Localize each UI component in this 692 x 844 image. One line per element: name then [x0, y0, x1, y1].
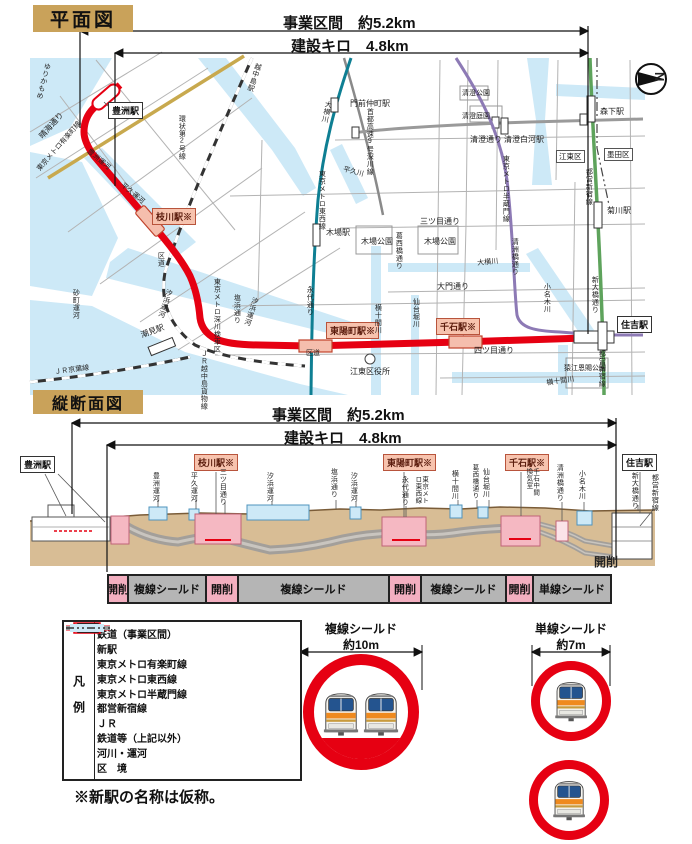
ward-label-sumida: 墨田区 [604, 148, 633, 161]
station-label-kiba: 木場駅 [326, 229, 350, 237]
bar-segment: 開削 [207, 576, 239, 602]
station-label-kiyosumi-shirakawa: 清澄白河駅 [504, 136, 544, 144]
label-koto-ward-office: 江東区役所 [350, 368, 390, 376]
legend-item-hanzomon: 東京メトロ半蔵門線 [97, 687, 298, 699]
station-label-edagawa: 枝川駅※ [152, 208, 196, 225]
label-kanjo-2: 環状第2号線 [178, 115, 185, 160]
label-sunamachi-canal: 砂町運河 [72, 289, 79, 319]
profile-label-tozai-line: 東京メトロ東西線 [413, 476, 427, 506]
label-mitsume-dori: 三ツ目通り [420, 218, 460, 226]
profile-station-edagawa: 枝川駅※ [194, 454, 238, 471]
profile-label-shiohama-canal: 汐浜運河 [266, 472, 273, 502]
station-label-sumiyoshi: 住吉駅 [617, 316, 652, 333]
label-kasaibashi-dori: 葛西橋通り [395, 232, 402, 270]
label-kiyosumi-dori: 清澄通り [470, 136, 502, 144]
station-label-toyocho: 東陽町駅※ [326, 322, 379, 339]
profile-label-yokojikken-river: 横十間川 [451, 470, 458, 500]
legend-item-new-station: 新駅 [97, 642, 298, 654]
label-etchujima-freight: ＪＲ越中島貨物線 [200, 350, 207, 410]
compass-label: N [652, 72, 666, 81]
plan-title: 平面図 [33, 5, 133, 32]
legend-item-shinjuku: 都営新宿線 [97, 702, 298, 714]
profile-label-heikyu-canal: 平久運河 [190, 472, 197, 502]
profile-label-sendaibori-river: 仙台堀川 [482, 468, 489, 498]
label-kiyosubashi-dori: 清洲橋通り [511, 238, 518, 276]
double-shield-section [300, 645, 422, 765]
label-kiba-park-2: 木場公園 [424, 238, 456, 246]
label-yokojikken-river: 横十間川 [374, 304, 381, 334]
profile-title: 縦断面図 [33, 390, 143, 414]
bar-segment: 複線シールド [129, 576, 207, 602]
plan-dim-construction: 建設キロ 4.8km [291, 35, 409, 56]
single-shield-title: 単線シールド [510, 620, 632, 637]
construction-method-bar: 開削 複線シールド 開削 複線シールド 開削 複線シールド 開削 単線シールド [107, 574, 612, 604]
label-kudo: 区道 [157, 252, 164, 267]
profile-dim-construction: 建設キロ 4.8km [284, 427, 402, 448]
ward-label-koto: 江東区 [556, 150, 585, 163]
label-kudo-2: 区道 [306, 350, 320, 357]
page: 平面図 事業区間 約5.2km 建設キロ 4.8km N 豊洲駅 枝川駅※ 東陽… [0, 0, 692, 844]
station-label-morishita: 森下駅 [600, 108, 624, 116]
label-yotsume-dori: 四ツ目通り [474, 347, 514, 355]
note-new-station: ※新駅の名称は仮称。 [74, 786, 224, 807]
profile-label-shiohama-dori: 塩浜通り [330, 468, 337, 498]
profile-station-toyocho: 東陽町駅※ [383, 454, 436, 471]
plan-dim-business: 事業区間 約5.2km [283, 12, 416, 33]
legend-item-project-rail: 鉄道（事業区間） [97, 627, 298, 639]
legend-item-jr: ＪＲ [97, 717, 298, 729]
double-shield-size: 約10m [300, 636, 422, 653]
profile-label-kaisaku: 開削 [594, 556, 618, 569]
profile-label-shin-ohashi-dori: 新大橋通り [631, 472, 638, 510]
station-label-kikukawa: 菊川駅 [607, 207, 631, 215]
bar-segment: 開削 [390, 576, 422, 602]
profile-label-kiyosubashi-dori: 清洲橋通り [556, 464, 563, 502]
legend-item-boundary: 区 境 [97, 761, 298, 773]
bar-segment: 開削 [109, 576, 129, 602]
label-kiba-park: 木場公園 [361, 238, 393, 246]
profile-label-toyosu-canal: 豊洲運河 [152, 472, 159, 502]
profile-dim-business: 事業区間 約5.2km [272, 404, 405, 425]
label-hanzomon-line: 東京メトロ半蔵門線 [502, 155, 509, 223]
label-shin-ohashi-dori: 新大橋通り [591, 276, 598, 314]
profile-label-sengoku-vent: 千石中間換気室 [524, 468, 538, 498]
label-shinjuku-line: 都営新宿線 [585, 168, 592, 206]
bar-segment: 単線シールド [534, 576, 610, 602]
label-shuto-expressway: 首都高速9号深川線 [366, 108, 373, 176]
ward-office-symbol [365, 354, 375, 364]
double-shield-title: 複線シールド [300, 620, 422, 637]
profile-label-eitai-dori: 永代通り [401, 476, 408, 506]
single-shield-size: 約7m [510, 636, 632, 653]
bar-segment: 複線シールド [239, 576, 390, 602]
label-eitai-dori: 永代通り [306, 286, 313, 316]
profile-toyosu-structure [32, 505, 110, 541]
boundary-symbol [64, 622, 112, 634]
legend-item-yurakucho: 東京メトロ有楽町線 [97, 657, 298, 669]
station-label-sengoku: 千石駅※ [436, 318, 480, 335]
label-daimon-dori: 大門通り [437, 283, 469, 291]
label-sendaibori-river: 仙台堀川 [412, 298, 419, 328]
profile-station-sumiyoshi: 住吉駅 [622, 454, 657, 471]
profile-label-mitsume-dori: 三ツ目通り [219, 468, 226, 506]
sumiyoshi-station-marker [574, 331, 614, 343]
single-shield-section [532, 645, 610, 836]
ward-boundary-line [597, 58, 609, 205]
profile-label-kasaibashi-dori: 葛西橋通り [470, 464, 477, 499]
bar-segment: 開削 [507, 576, 534, 602]
label-tozai-line: 東京メトロ東西線 [318, 170, 325, 230]
legend-rows: 鉄道（事業区間） 新駅 東京メトロ有楽町線 東京メトロ東西線 東京メトロ半蔵門線… [95, 622, 300, 779]
profile-station-toyosu: 豊洲駅 [20, 456, 55, 473]
profile-label-shiohama-canal-2: 汐浜運河 [350, 472, 357, 502]
label-kiyosumi-garden: 清澄庭園 [462, 113, 490, 120]
legend-item-tozai: 東京メトロ東西線 [97, 672, 298, 684]
label-shiohama-dori: 塩浜通り [233, 294, 240, 324]
legend-item-water: 河川・運河 [97, 747, 298, 759]
bar-segment: 複線シールド [422, 576, 507, 602]
profile-label-onagi-river: 小名木川 [578, 470, 585, 500]
label-fukagawa-depot: 東京メトロ深川検車区 [213, 278, 220, 353]
legend-box: 凡例 鉄道（事業区間） 新駅 東京メトロ有楽町線 東京メトロ東西線 東京メトロ半… [62, 620, 302, 781]
profile-label-shinjuku-line: 都営新宿線 [651, 474, 658, 512]
label-kiyosumi-park: 清澄公園 [462, 90, 490, 97]
label-onagi-river: 小名木川 [543, 283, 550, 313]
legend-item-other-rail: 鉄道等（上記以外） [97, 732, 298, 744]
label-sarue-park: 猿江恩賜公園 [564, 365, 606, 372]
station-label-toyosu: 豊洲駅 [108, 102, 143, 119]
legend-title: 凡例 [64, 622, 95, 779]
